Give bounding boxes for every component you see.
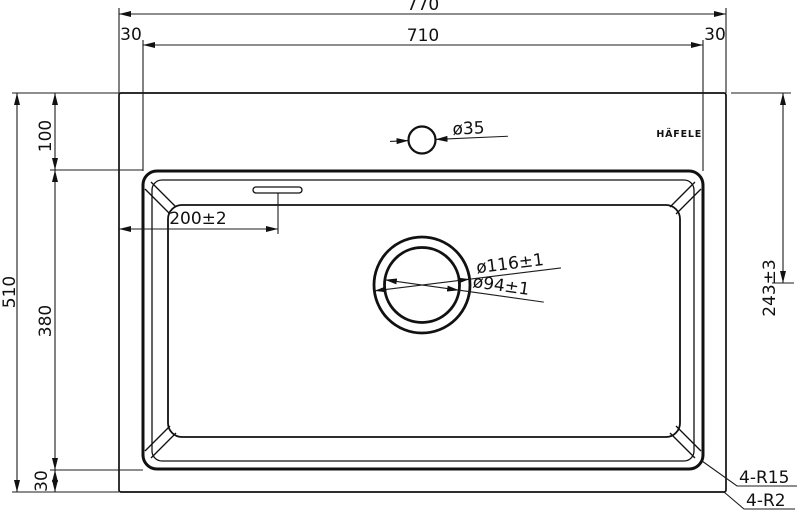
dim-label-rim-top-right: 30 xyxy=(704,25,726,45)
bowl-rim-line xyxy=(152,180,694,461)
dim-label-top-to-bowl: 100 xyxy=(36,120,56,152)
dim-label-bottom-rim: 30 xyxy=(32,470,52,492)
corner-chamfer-top-right-a xyxy=(670,182,695,207)
dim-label-bowl-height: 380 xyxy=(36,305,56,337)
dim-label-drain-inner: ø94±1 xyxy=(472,272,531,300)
bowl-bottom-edge xyxy=(168,205,680,437)
dim-label-rim-top-left: 30 xyxy=(120,25,142,45)
faucet-hole xyxy=(409,127,436,154)
dim-label-body-corner-radius: 4-R2 xyxy=(746,491,786,511)
corner-chamfer-bottom-right-a xyxy=(670,433,695,458)
dim-label-bowl-width: 710 xyxy=(407,26,439,46)
overflow-slot xyxy=(253,187,302,193)
corner-chamfer-top-right-b xyxy=(676,189,701,214)
corner-chamfer-bottom-left-a xyxy=(151,433,176,458)
dim-label-drain-from-top: 243±3 xyxy=(760,259,780,317)
dim-label-overall-width: 770 xyxy=(407,0,439,15)
dim-label-faucet-hole: ø35 xyxy=(452,118,485,139)
dim-label-overflow-offset: 200±2 xyxy=(169,209,227,229)
bowl-opening-edge xyxy=(143,171,703,469)
dim-label-overall-height: 510 xyxy=(0,276,20,308)
corner-chamfer-bottom-left-b xyxy=(145,426,170,451)
dim-label-bowl-corner-radius: 4-R15 xyxy=(739,468,789,488)
faucet-dimension-group: ø35 xyxy=(389,117,508,142)
faucet-dim-arrow-left xyxy=(390,141,408,142)
technical-drawing: HÄFELE 770 710 30 30 510 100 380 30 243±… xyxy=(0,0,800,511)
corner-chamfer-top-left-a xyxy=(151,182,176,207)
sink-drawing-canvas: HÄFELE 770 710 30 30 510 100 380 30 243±… xyxy=(0,0,800,511)
brand-logo: HÄFELE xyxy=(656,129,702,140)
corner-chamfer-bottom-right-b xyxy=(676,426,701,451)
corner-chamfer-top-left-b xyxy=(145,189,170,214)
